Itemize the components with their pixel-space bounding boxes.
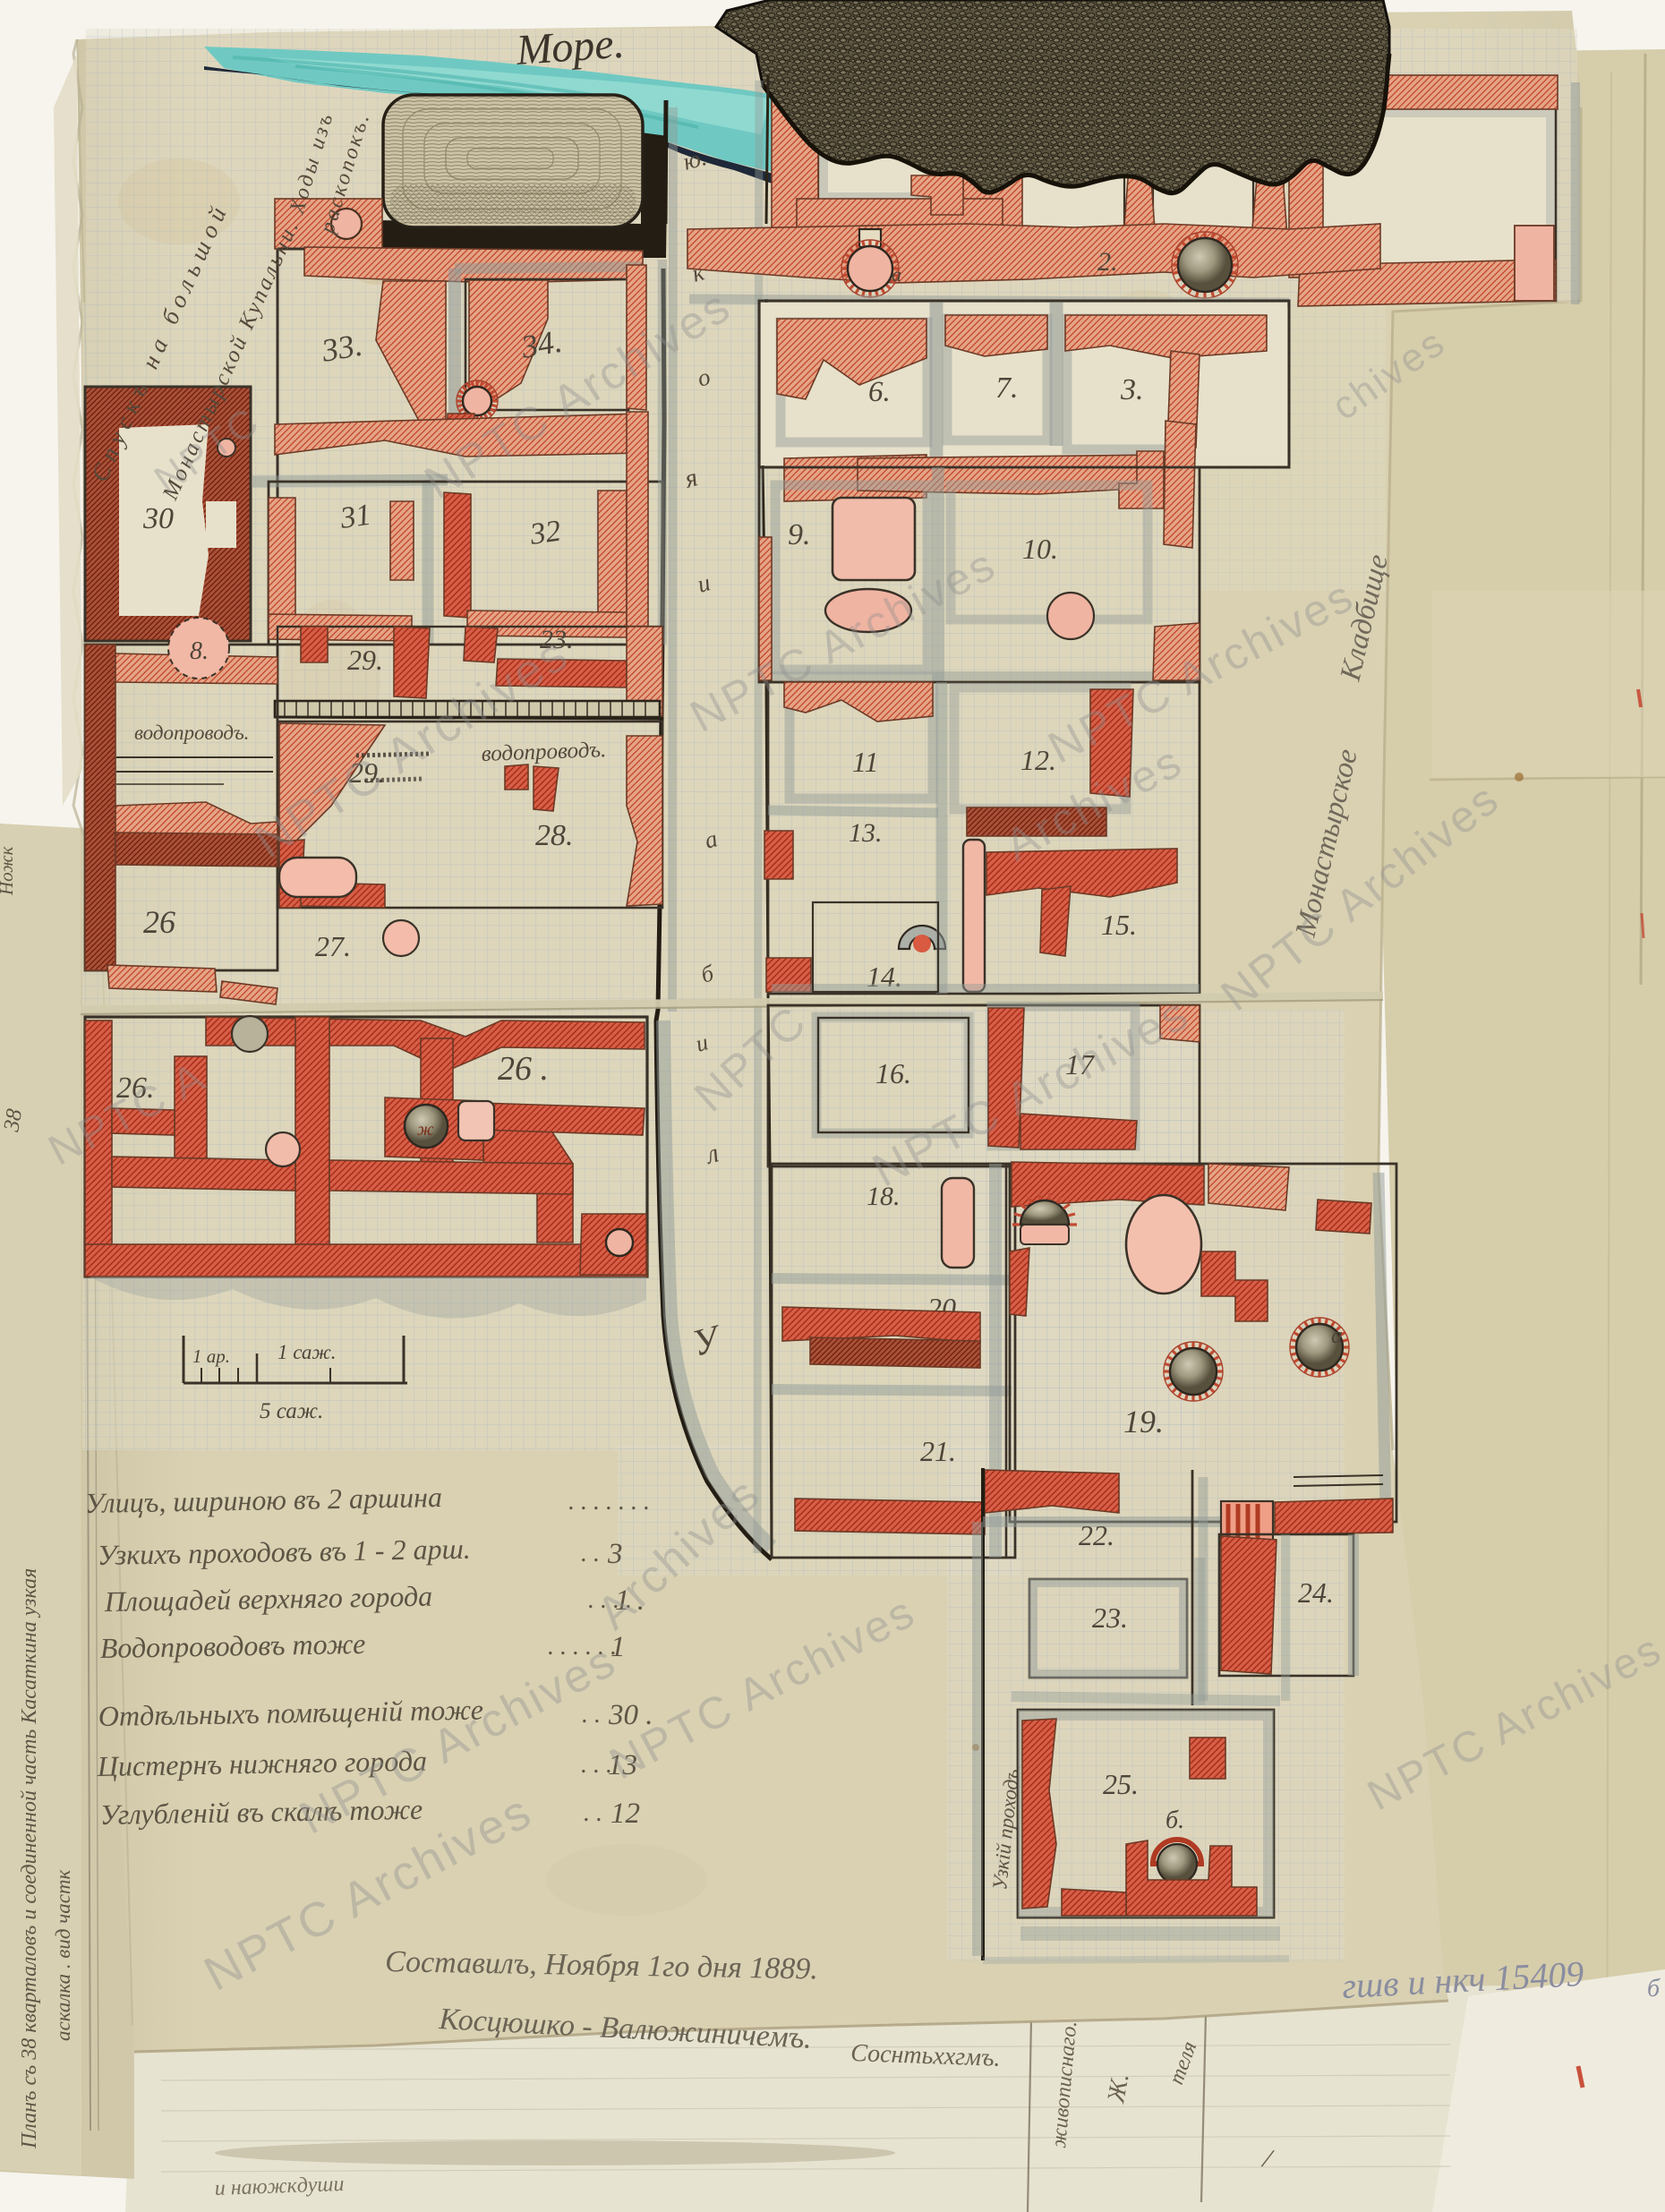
svg-text:23.: 23. — [1092, 1601, 1128, 1634]
svg-text:24.: 24. — [1298, 1576, 1334, 1609]
svg-text:б.: б. — [1165, 1806, 1184, 1834]
svg-text:б: б — [1647, 1975, 1661, 2003]
svg-text:15.: 15. — [1101, 909, 1137, 941]
svg-text:9.: 9. — [788, 518, 811, 551]
svg-text:а: а — [1331, 1322, 1343, 1348]
svg-text:26 .: 26 . — [498, 1050, 549, 1088]
svg-text:8.: 8. — [190, 637, 209, 665]
svg-text:30: 30 — [142, 502, 174, 535]
svg-text:10.: 10. — [1022, 533, 1058, 565]
svg-text:водопроводъ.: водопроводъ. — [134, 722, 249, 744]
svg-text:2.: 2. — [1097, 247, 1118, 277]
svg-text:Ножк: Ножк — [0, 846, 17, 896]
svg-text:7.: 7. — [995, 372, 1019, 405]
svg-text:5 саж.: 5 саж. — [260, 1399, 323, 1423]
svg-text:6.: 6. — [868, 376, 891, 408]
svg-text:3.: 3. — [1120, 373, 1144, 406]
svg-text:Планъ съ 38 кварталовъ и соеди: Планъ съ 38 кварталовъ и соединенной час… — [18, 1568, 41, 2149]
svg-text:1 ар.: 1 ар. — [192, 1345, 230, 1367]
svg-text:Ж.: Ж. — [1102, 2071, 1134, 2106]
svg-text:34.: 34. — [517, 323, 564, 365]
svg-text:33.: 33. — [318, 327, 364, 369]
svg-text:ж: ж — [417, 1120, 434, 1140]
svg-text:21.: 21. — [920, 1435, 956, 1467]
svg-text:и наюжкдуши: и наюжкдуши — [214, 2173, 344, 2200]
svg-text:Узкихъ проходовъ въ 1 - 2 арш.: Узкихъ проходовъ въ 1 - 2 арш. — [97, 1533, 470, 1571]
svg-text:32: 32 — [527, 515, 563, 552]
svg-text:22.: 22. — [1079, 1519, 1114, 1551]
svg-text:аскалка . вид частк: аскалка . вид частк — [52, 1869, 74, 2041]
svg-text:28.: 28. — [535, 819, 574, 852]
svg-text:Площадей верхняго города: Площадей верхняго города — [103, 1580, 432, 1618]
svg-text:а: а — [892, 263, 901, 286]
svg-text:12: 12 — [610, 1798, 640, 1830]
svg-text:26: 26 — [143, 904, 175, 940]
svg-text:Улицъ, шириною въ 2 аршина: Улицъ, шириною въ 2 аршина — [84, 1481, 442, 1519]
svg-text:11: 11 — [852, 746, 879, 778]
svg-text:16.: 16. — [875, 1057, 911, 1089]
svg-text:водопроводъ.: водопроводъ. — [481, 738, 606, 766]
svg-text:38: 38 — [0, 1106, 27, 1134]
svg-text:1 саж.: 1 саж. — [277, 1341, 337, 1363]
svg-text:29.: 29. — [347, 644, 383, 676]
svg-text:31: 31 — [337, 499, 373, 536]
svg-text:Море.: Море. — [514, 20, 626, 74]
svg-text:. . . . . . .: . . . . . . . — [568, 1488, 650, 1516]
svg-text:Соснтьххгмъ.: Соснтьххгмъ. — [850, 2039, 1001, 2072]
svg-text:. .: . . — [581, 1540, 600, 1567]
svg-text:13.: 13. — [849, 818, 883, 848]
svg-text:3: 3 — [607, 1538, 623, 1570]
svg-text:Водопроводовъ тоже: Водопроводовъ тоже — [99, 1627, 365, 1664]
svg-text:. .: . . — [582, 1701, 601, 1729]
svg-text:25.: 25. — [1103, 1768, 1139, 1800]
svg-text:27.: 27. — [315, 930, 351, 962]
svg-text:19.: 19. — [1123, 1404, 1164, 1439]
svg-text:. .: . . — [584, 1799, 602, 1827]
